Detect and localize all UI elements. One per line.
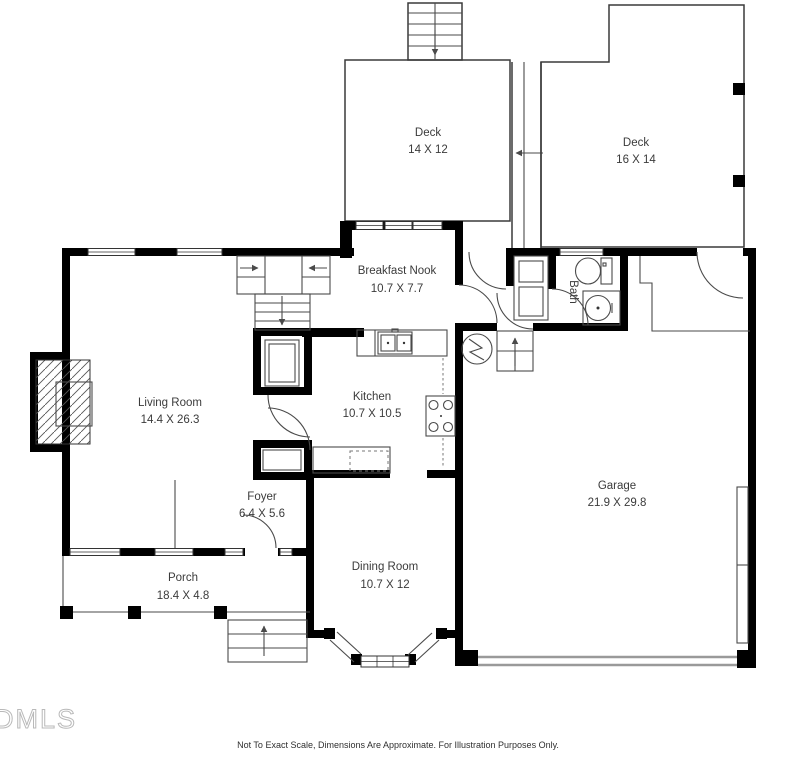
garage-landing bbox=[640, 256, 750, 331]
floor-plan-svg: Deck 14 X 12 Deck 16 X 14 Breakfast Nook… bbox=[0, 0, 800, 757]
door-arc bbox=[497, 293, 533, 329]
door-arc bbox=[469, 252, 506, 289]
room-name: Bath bbox=[567, 280, 579, 304]
deck-post bbox=[733, 175, 745, 187]
closet-under-stairs bbox=[265, 340, 299, 386]
room-dims: 18.4 X 4.8 bbox=[157, 590, 209, 602]
room-label-garage: Garage 21.9 X 29.8 bbox=[588, 480, 647, 509]
room-label-bath: Bath bbox=[567, 280, 579, 304]
room-label-deck-right: Deck 16 X 14 bbox=[616, 137, 656, 166]
window bbox=[385, 222, 412, 230]
window bbox=[280, 549, 292, 556]
window bbox=[70, 549, 120, 556]
room-label-foyer: Foyer 6.4 X 5.6 bbox=[239, 491, 285, 520]
room-label-living-room: Living Room 14.4 X 26.3 bbox=[138, 397, 202, 426]
porch-post bbox=[214, 606, 227, 619]
porch-post bbox=[128, 606, 141, 619]
room-dims: 10.7 X 7.7 bbox=[371, 283, 423, 295]
door-arc bbox=[697, 252, 743, 298]
door-arc bbox=[268, 395, 310, 437]
watermark-logo: DMLS bbox=[0, 704, 77, 734]
window bbox=[155, 549, 193, 556]
room-dims: 14.4 X 26.3 bbox=[141, 414, 200, 426]
disclaimer-text: Not To Exact Scale, Dimensions Are Appro… bbox=[237, 740, 559, 750]
room-dims: 10.7 X 12 bbox=[360, 579, 409, 591]
room-name: Garage bbox=[598, 480, 636, 492]
window bbox=[413, 222, 442, 230]
room-label-porch: Porch 18.4 X 4.8 bbox=[157, 572, 209, 602]
room-name: Foyer bbox=[247, 491, 277, 503]
room-label-deck-top: Deck 14 X 12 bbox=[408, 127, 448, 156]
deck-top-outline bbox=[345, 60, 510, 221]
dishwasher-icon bbox=[350, 451, 388, 471]
hall-closet bbox=[514, 256, 548, 320]
deck-right-outline bbox=[541, 5, 745, 247]
fireplace-icon bbox=[36, 360, 92, 444]
room-name: Deck bbox=[415, 127, 441, 139]
window bbox=[177, 249, 222, 256]
toilet-icon bbox=[576, 258, 613, 284]
room-dims: 6.4 X 5.6 bbox=[239, 508, 285, 520]
windows bbox=[70, 222, 603, 556]
window bbox=[560, 249, 603, 256]
room-name: Dining Room bbox=[352, 561, 418, 573]
room-label-breakfast-nook: Breakfast Nook 10.7 X 7.7 bbox=[358, 265, 437, 295]
interior-stairs bbox=[237, 256, 330, 330]
stove-icon bbox=[426, 396, 455, 436]
window bbox=[356, 222, 383, 230]
garage-shelf bbox=[737, 487, 748, 643]
room-dims: 21.9 X 29.8 bbox=[588, 497, 647, 509]
room-dims: 10.7 X 10.5 bbox=[343, 408, 402, 420]
room-label-dining-room: Dining Room 10.7 X 12 bbox=[352, 561, 418, 591]
furnace-icon bbox=[462, 334, 492, 364]
deck-post bbox=[733, 83, 745, 95]
bay-window bbox=[324, 628, 447, 667]
deck-stairs bbox=[408, 3, 462, 60]
room-name: Porch bbox=[168, 572, 198, 584]
room-name: Kitchen bbox=[353, 391, 391, 403]
floor-plan-page: Deck 14 X 12 Deck 16 X 14 Breakfast Nook… bbox=[0, 0, 800, 757]
basement-steps bbox=[497, 331, 533, 371]
door-arcs bbox=[243, 252, 743, 548]
door-arc bbox=[459, 285, 497, 323]
deck-walkway bbox=[512, 62, 543, 248]
room-name: Deck bbox=[623, 137, 649, 149]
window bbox=[88, 249, 135, 256]
porch-post bbox=[60, 606, 73, 619]
porch-steps bbox=[228, 620, 307, 662]
kitchen-sink-icon bbox=[378, 329, 412, 354]
room-dims: 14 X 12 bbox=[408, 144, 448, 156]
garage-door bbox=[478, 657, 737, 665]
room-dims: 16 X 14 bbox=[616, 154, 656, 166]
bathroom-sink-icon bbox=[583, 291, 620, 325]
foyer-closet bbox=[263, 450, 301, 470]
room-name: Breakfast Nook bbox=[358, 265, 437, 277]
room-label-kitchen: Kitchen 10.7 X 10.5 bbox=[343, 391, 402, 420]
window bbox=[225, 549, 243, 556]
room-name: Living Room bbox=[138, 397, 202, 409]
porch-outline bbox=[60, 556, 310, 619]
